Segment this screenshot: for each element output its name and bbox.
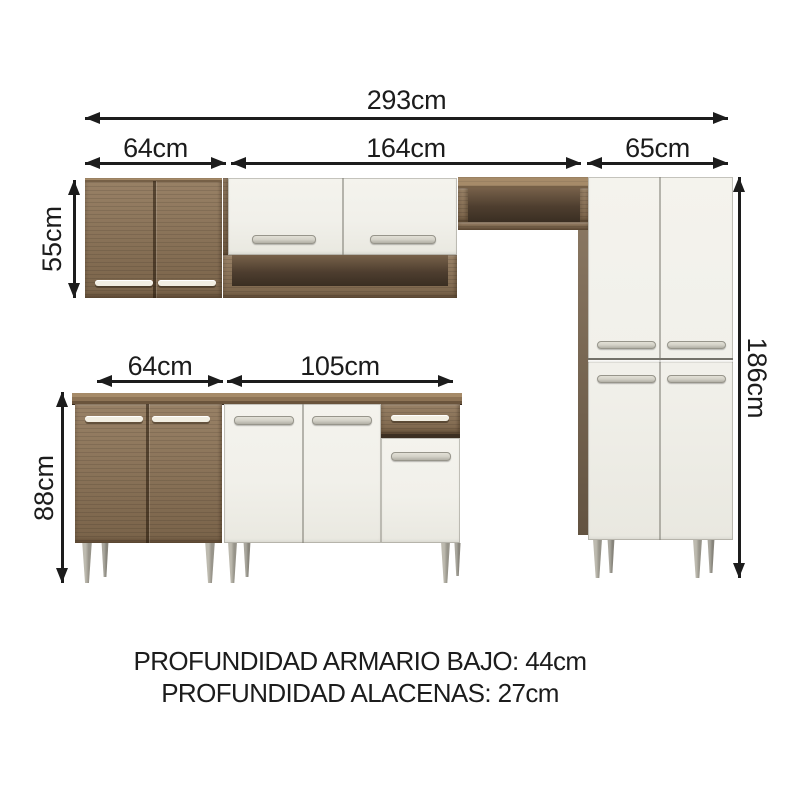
base-cabinet-white-leg-back-right <box>453 543 462 576</box>
wall-cabinet-white <box>223 178 457 298</box>
wall-cabinet-wood-handle-left <box>95 280 153 286</box>
tall-cabinet-handle-upper-left <box>597 341 656 349</box>
base-cabinet-wood-leg-front-left <box>80 543 94 583</box>
depth-note-wall: PROFUNDIDAD ALACENAS: 27cm <box>40 678 680 708</box>
base-cabinet-wood-handle-left <box>85 416 143 422</box>
upper-right-width-label: 65cm <box>587 133 728 163</box>
base-cabinet-white-leg-back-left <box>242 543 252 577</box>
base-cabinet-wood-door-seam <box>146 404 149 543</box>
base-cabinet-white-leg-front-left <box>226 543 239 583</box>
base-cabinet-wood-handle-right <box>152 416 210 422</box>
base-left-width-label: 64cm <box>97 351 223 381</box>
base-cabinet-wood-leg-front-right <box>203 543 217 583</box>
wall-cabinet-open-shelf-interior <box>232 255 448 286</box>
wall-cabinet-height-label: 55cm <box>37 177 67 301</box>
tall-cabinet-height-label: 186cm <box>742 316 772 440</box>
tall-cabinet-leg-back-right <box>706 540 716 573</box>
wall-cabinet-white-handle-right <box>370 235 436 244</box>
base-cabinet-lower-door <box>381 438 460 543</box>
tall-cabinet-handle-upper-right <box>667 341 726 349</box>
upper-mid-width-label: 164cm <box>231 133 581 163</box>
wall-cabinet-white-doors <box>228 178 457 255</box>
base-cabinet-height-label: 88cm <box>29 426 59 550</box>
base-cabinet-wood-leg-back-left <box>100 543 110 577</box>
tall-cabinet-mid-divider <box>588 358 733 360</box>
base-cabinet-white-doors <box>224 404 381 543</box>
tall-cabinet-height-arrow <box>738 177 741 578</box>
tall-cabinet <box>588 177 733 540</box>
tall-cabinet-leg-front-right <box>691 540 704 578</box>
base-cabinet-wood-body <box>75 404 222 543</box>
base-cabinet-drawer-handle <box>391 415 449 421</box>
tall-cabinet-handle-lower-right <box>667 375 726 383</box>
total-width-arrow <box>85 117 728 120</box>
base-mid-width-arrow <box>227 380 453 383</box>
base-cabinet-white-handle-right <box>312 416 372 425</box>
base-left-width-arrow <box>97 380 223 383</box>
wall-cabinet-white-door-seam <box>342 178 344 255</box>
connecting-shelf-top <box>458 177 590 188</box>
connecting-shelf-bottom <box>458 222 590 230</box>
upper-right-width-arrow <box>587 162 728 165</box>
wall-cabinet-white-handle-left <box>252 235 316 244</box>
connecting-shelf-interior <box>468 188 580 222</box>
base-cabinet-drawer <box>381 404 460 434</box>
upper-left-width-label: 64cm <box>85 133 226 163</box>
wall-cabinet-wood <box>85 178 222 298</box>
base-cabinet-white-door-seam <box>302 404 304 543</box>
base-cabinet-wood <box>72 393 225 583</box>
upper-left-width-arrow <box>85 162 226 165</box>
base-cabinet-white-body <box>224 404 460 543</box>
connecting-shelf <box>458 177 590 230</box>
wall-cabinet-wood-door-seam <box>153 181 156 298</box>
upper-mid-width-arrow <box>231 162 581 165</box>
base-mid-width-label: 105cm <box>227 351 453 381</box>
base-cabinet-white <box>222 393 462 583</box>
tall-cabinet-leg-back-left <box>606 540 616 573</box>
base-cabinet-white-handle-left <box>234 416 294 425</box>
kitchen-set-dimension-diagram: 293cm 64cm 164cm 65cm 55cm 88cm 186cm 64… <box>0 0 800 800</box>
depth-note-base: PROFUNDIDAD ARMARIO BAJO: 44cm <box>40 646 680 676</box>
wall-cabinet-height-arrow <box>73 180 76 298</box>
wall-cabinet-open-shelf <box>223 255 457 298</box>
connecting-shelf-left-wall <box>458 188 468 222</box>
base-cabinet-height-arrow <box>61 392 64 583</box>
wall-cabinet-wood-handle-right <box>158 280 216 286</box>
total-width-label: 293cm <box>85 85 728 115</box>
base-cabinet-lower-door-handle <box>391 452 451 461</box>
tall-cabinet-handle-lower-left <box>597 375 656 383</box>
tall-cabinet-leg-front-left <box>591 540 604 578</box>
base-cabinet-white-leg-front-right <box>439 543 452 583</box>
